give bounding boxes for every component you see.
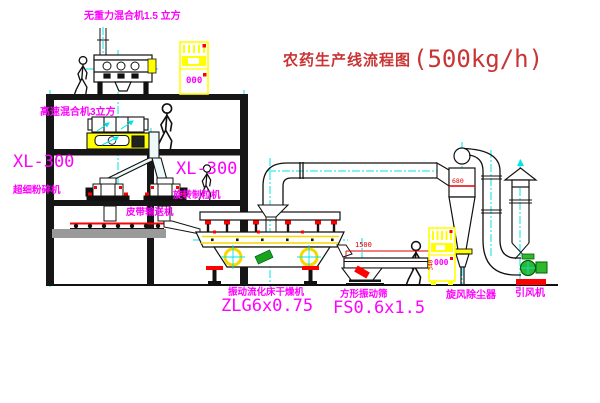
title-capacity: (500kg/h) bbox=[413, 45, 543, 73]
worker-1 bbox=[75, 57, 87, 94]
diagram-title: 农药生产线流程图 (500kg/h) bbox=[283, 45, 543, 73]
dim-cyclone: 680 bbox=[452, 178, 464, 185]
gravity-mixer bbox=[94, 55, 156, 94]
control-cabinet-2 bbox=[429, 228, 455, 285]
label-mill: 超细粉碎机 bbox=[13, 186, 61, 196]
dryer-legs bbox=[206, 266, 319, 285]
cabinet2-code: 000 bbox=[434, 259, 448, 267]
label-granulator: 旋转制粒机 bbox=[173, 191, 221, 201]
label-cyclone: 旋风除尘器 bbox=[446, 291, 496, 301]
label-fan: 引风机 bbox=[515, 289, 545, 299]
label-belt-conveyor: 皮带输送机 bbox=[126, 208, 174, 218]
high-speed-mixer bbox=[87, 117, 149, 149]
title-text: 农药生产线流程图 bbox=[283, 49, 411, 70]
dim-sieve-length: 1500 bbox=[355, 242, 372, 249]
label-xl300-right: XL-300 bbox=[176, 161, 237, 178]
label-sieve-model: FS0.6x1.5 bbox=[333, 300, 425, 317]
label-dryer-model: ZLG6x0.75 bbox=[221, 298, 313, 315]
control-cabinet-1 bbox=[180, 42, 208, 94]
dryer-duct bbox=[263, 162, 449, 205]
flow-diagram-canvas: 农药生产线流程图 (500kg/h) 无重力混合机1.5 立方 高速混合机3立方… bbox=[0, 0, 600, 403]
label-gravity-mixer: 无重力混合机1.5 立方 bbox=[84, 12, 181, 22]
cabinet1-code: 000 bbox=[186, 77, 202, 86]
fluid-bed-dryer bbox=[196, 205, 352, 285]
label-high-speed-mixer: 高速混合机3立方 bbox=[40, 108, 116, 118]
belt-conveyor bbox=[52, 221, 200, 238]
dryer-mounts bbox=[205, 221, 337, 233]
granulator-left bbox=[86, 178, 129, 201]
label-xl300-left: XL-300 bbox=[13, 154, 74, 171]
